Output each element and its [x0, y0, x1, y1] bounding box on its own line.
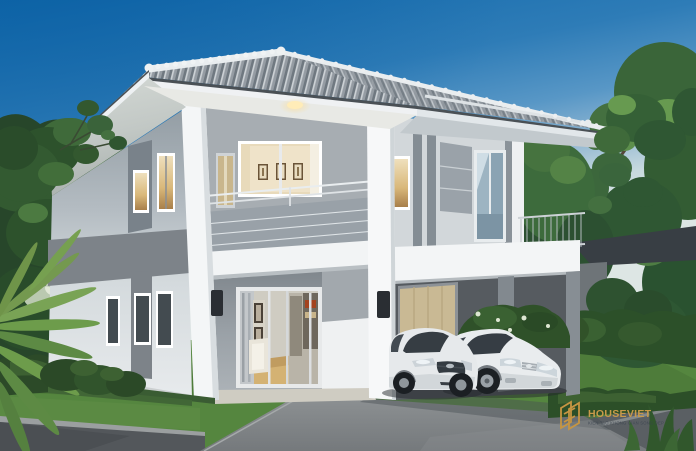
svg-text:KIEN TAO KHONG GIAN SONG DEP: KIEN TAO KHONG GIAN SONG DEP [588, 421, 664, 426]
svg-text:HOUSEVIET: HOUSEVIET [588, 408, 652, 420]
